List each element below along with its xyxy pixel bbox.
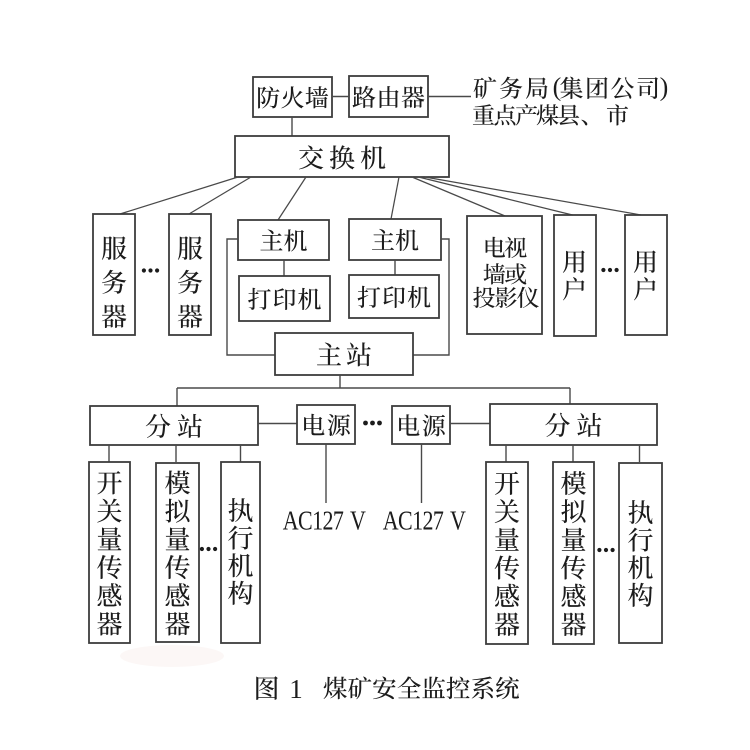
svg-text:AC127 V: AC127 V	[283, 506, 366, 536]
svg-text:1: 1	[289, 674, 303, 704]
svg-text:AC127 V: AC127 V	[383, 506, 466, 536]
svg-text:(: (	[553, 73, 562, 102]
svg-text:): )	[660, 73, 669, 102]
